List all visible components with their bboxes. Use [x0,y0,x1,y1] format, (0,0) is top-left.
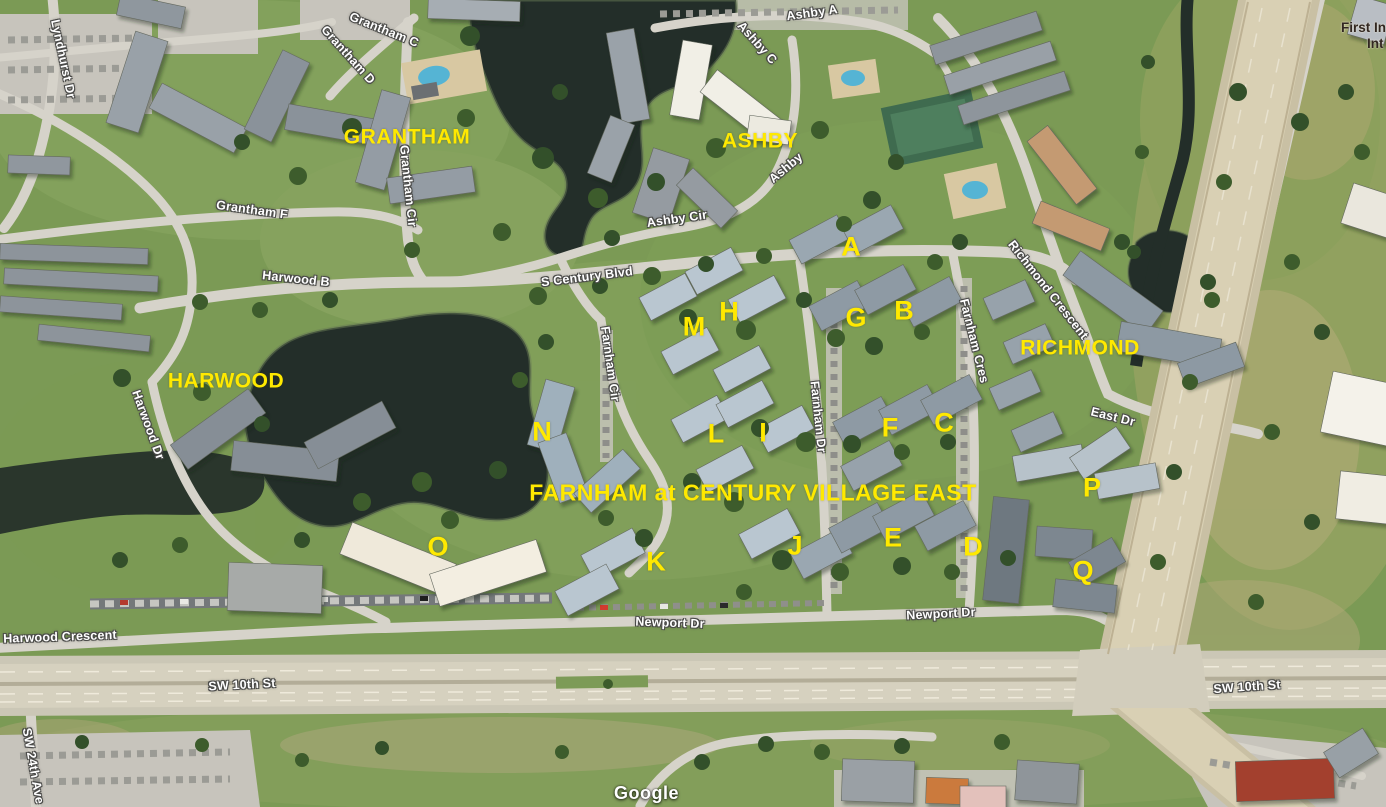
poi-line-1: First In [1341,20,1386,36]
google-watermark: Google [614,783,679,804]
pool-richmond [962,181,988,199]
poi-label-first-in: First In Int [1341,20,1386,52]
poi-line-2: Int [1367,36,1386,52]
satellite-imagery [0,0,1386,807]
pool-ashby [841,70,865,86]
map-viewport[interactable]: GRANTHAMASHBYHARWOODRICHMONDFARNHAM at C… [0,0,1386,807]
